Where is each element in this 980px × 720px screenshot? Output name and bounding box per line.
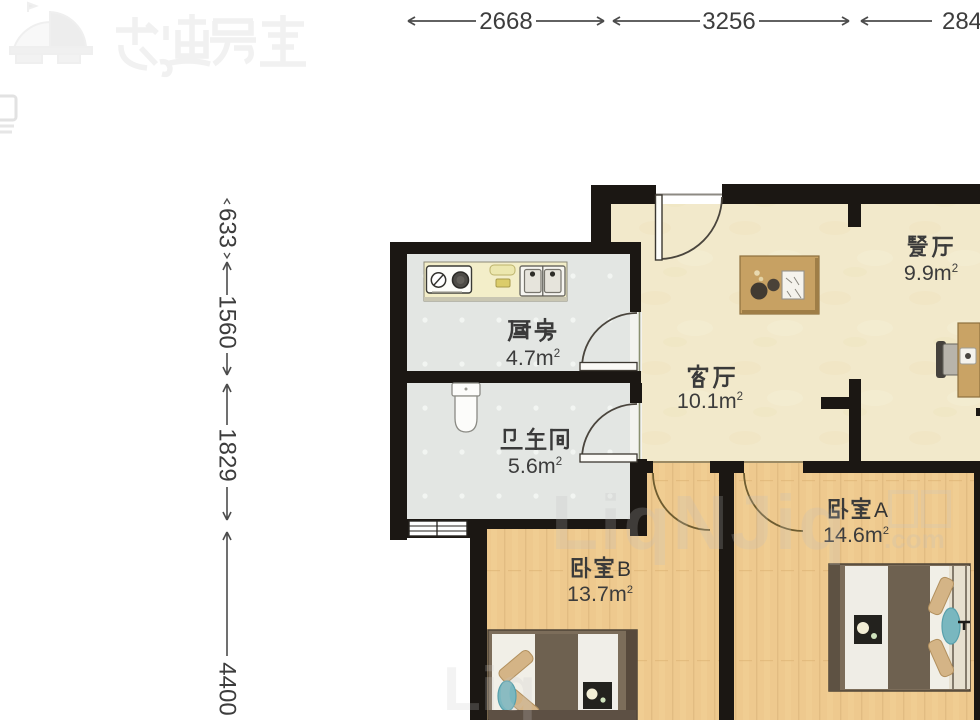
svg-text:633: 633 [214, 208, 241, 248]
svg-text:Liq: Liq [443, 655, 536, 720]
svg-text:4.7m2: 4.7m2 [506, 346, 560, 370]
svg-text:.com: .com [884, 524, 945, 554]
svg-text:LiqNJiq: LiqNJiq [551, 480, 847, 566]
svg-text:10.1m2: 10.1m2 [677, 389, 743, 413]
svg-text:13.7m2: 13.7m2 [567, 582, 633, 606]
svg-text:1829: 1829 [214, 428, 241, 481]
svg-text:4400: 4400 [214, 662, 241, 715]
svg-text:284: 284 [942, 8, 980, 35]
svg-text:3256: 3256 [702, 8, 755, 35]
svg-text:A: A [874, 499, 888, 522]
svg-text:1560: 1560 [214, 295, 241, 348]
svg-text:5.6m2: 5.6m2 [508, 454, 562, 478]
svg-text:2668: 2668 [479, 8, 532, 35]
svg-text:9.9m2: 9.9m2 [904, 261, 958, 285]
